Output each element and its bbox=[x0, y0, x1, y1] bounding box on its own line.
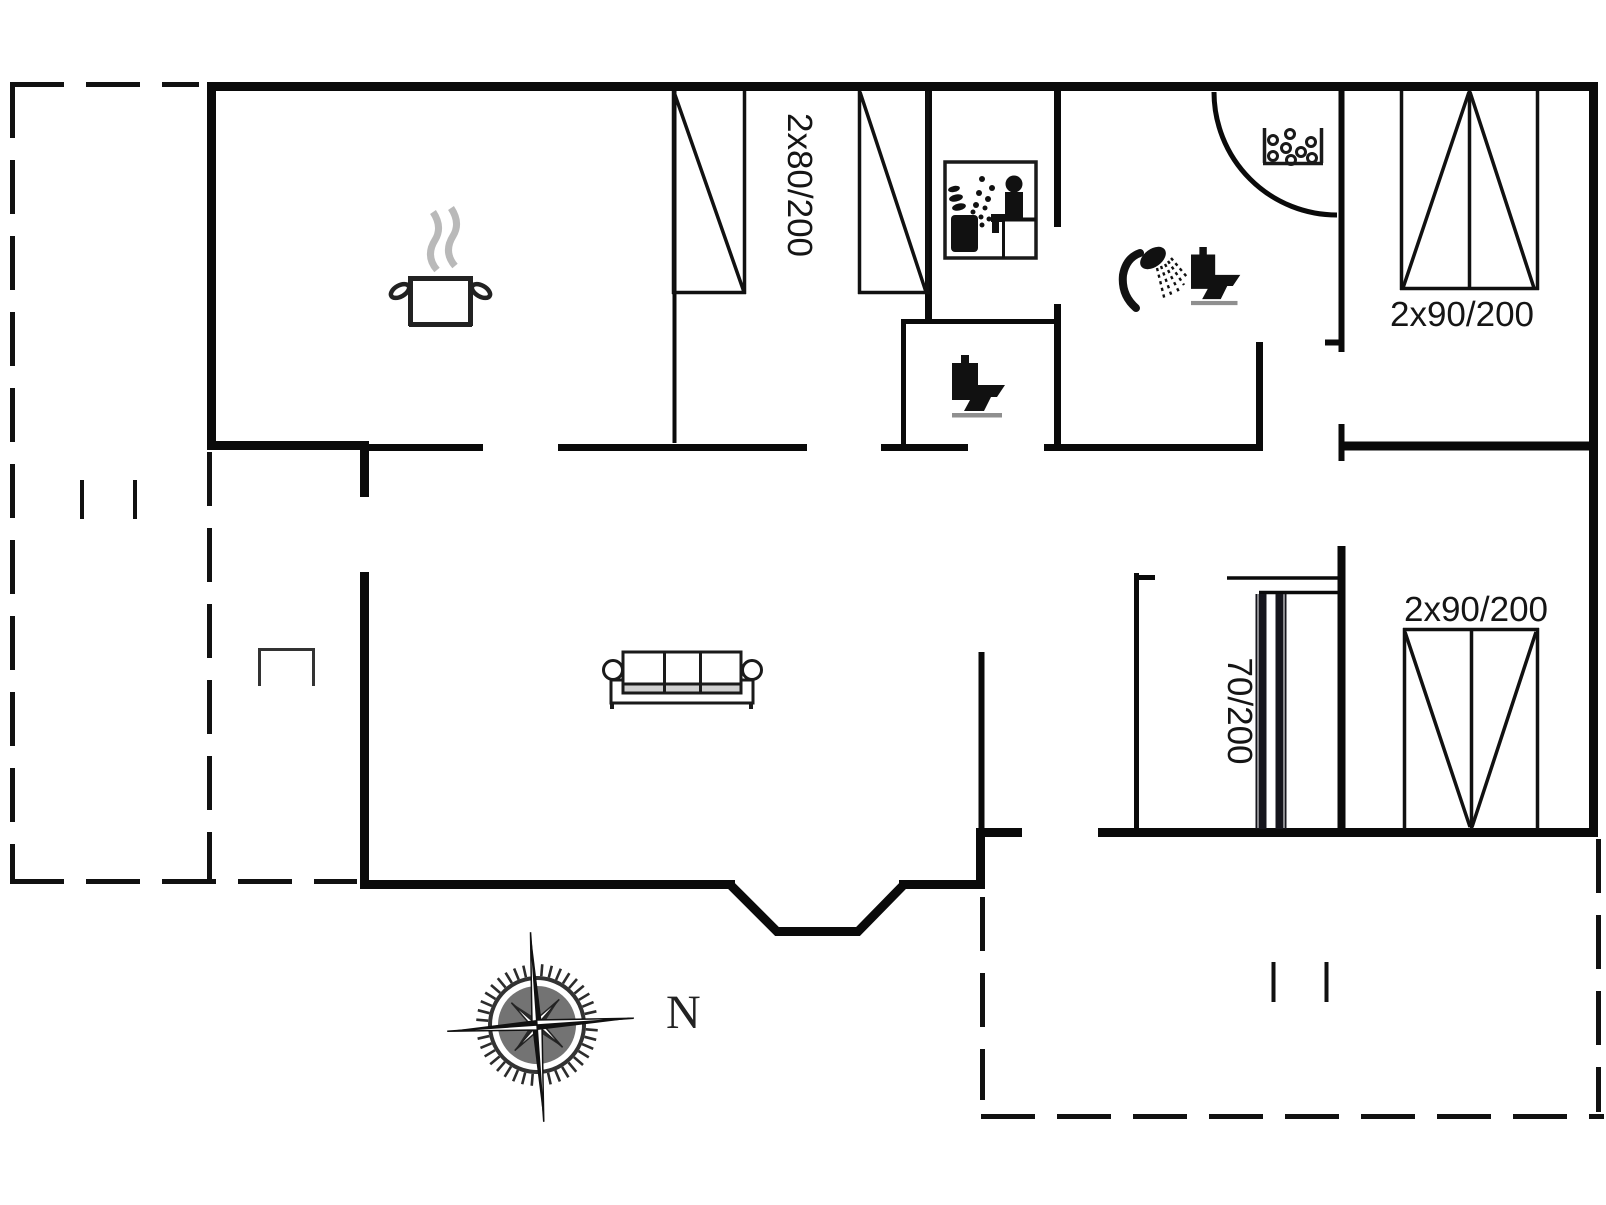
svg-text:2x90/200: 2x90/200 bbox=[1390, 295, 1534, 334]
svg-text:70/200: 70/200 bbox=[1220, 657, 1259, 764]
svg-text:N: N bbox=[666, 986, 701, 1039]
svg-text:2x80/200: 2x80/200 bbox=[780, 113, 819, 257]
svg-text:2x90/200: 2x90/200 bbox=[1404, 590, 1548, 629]
